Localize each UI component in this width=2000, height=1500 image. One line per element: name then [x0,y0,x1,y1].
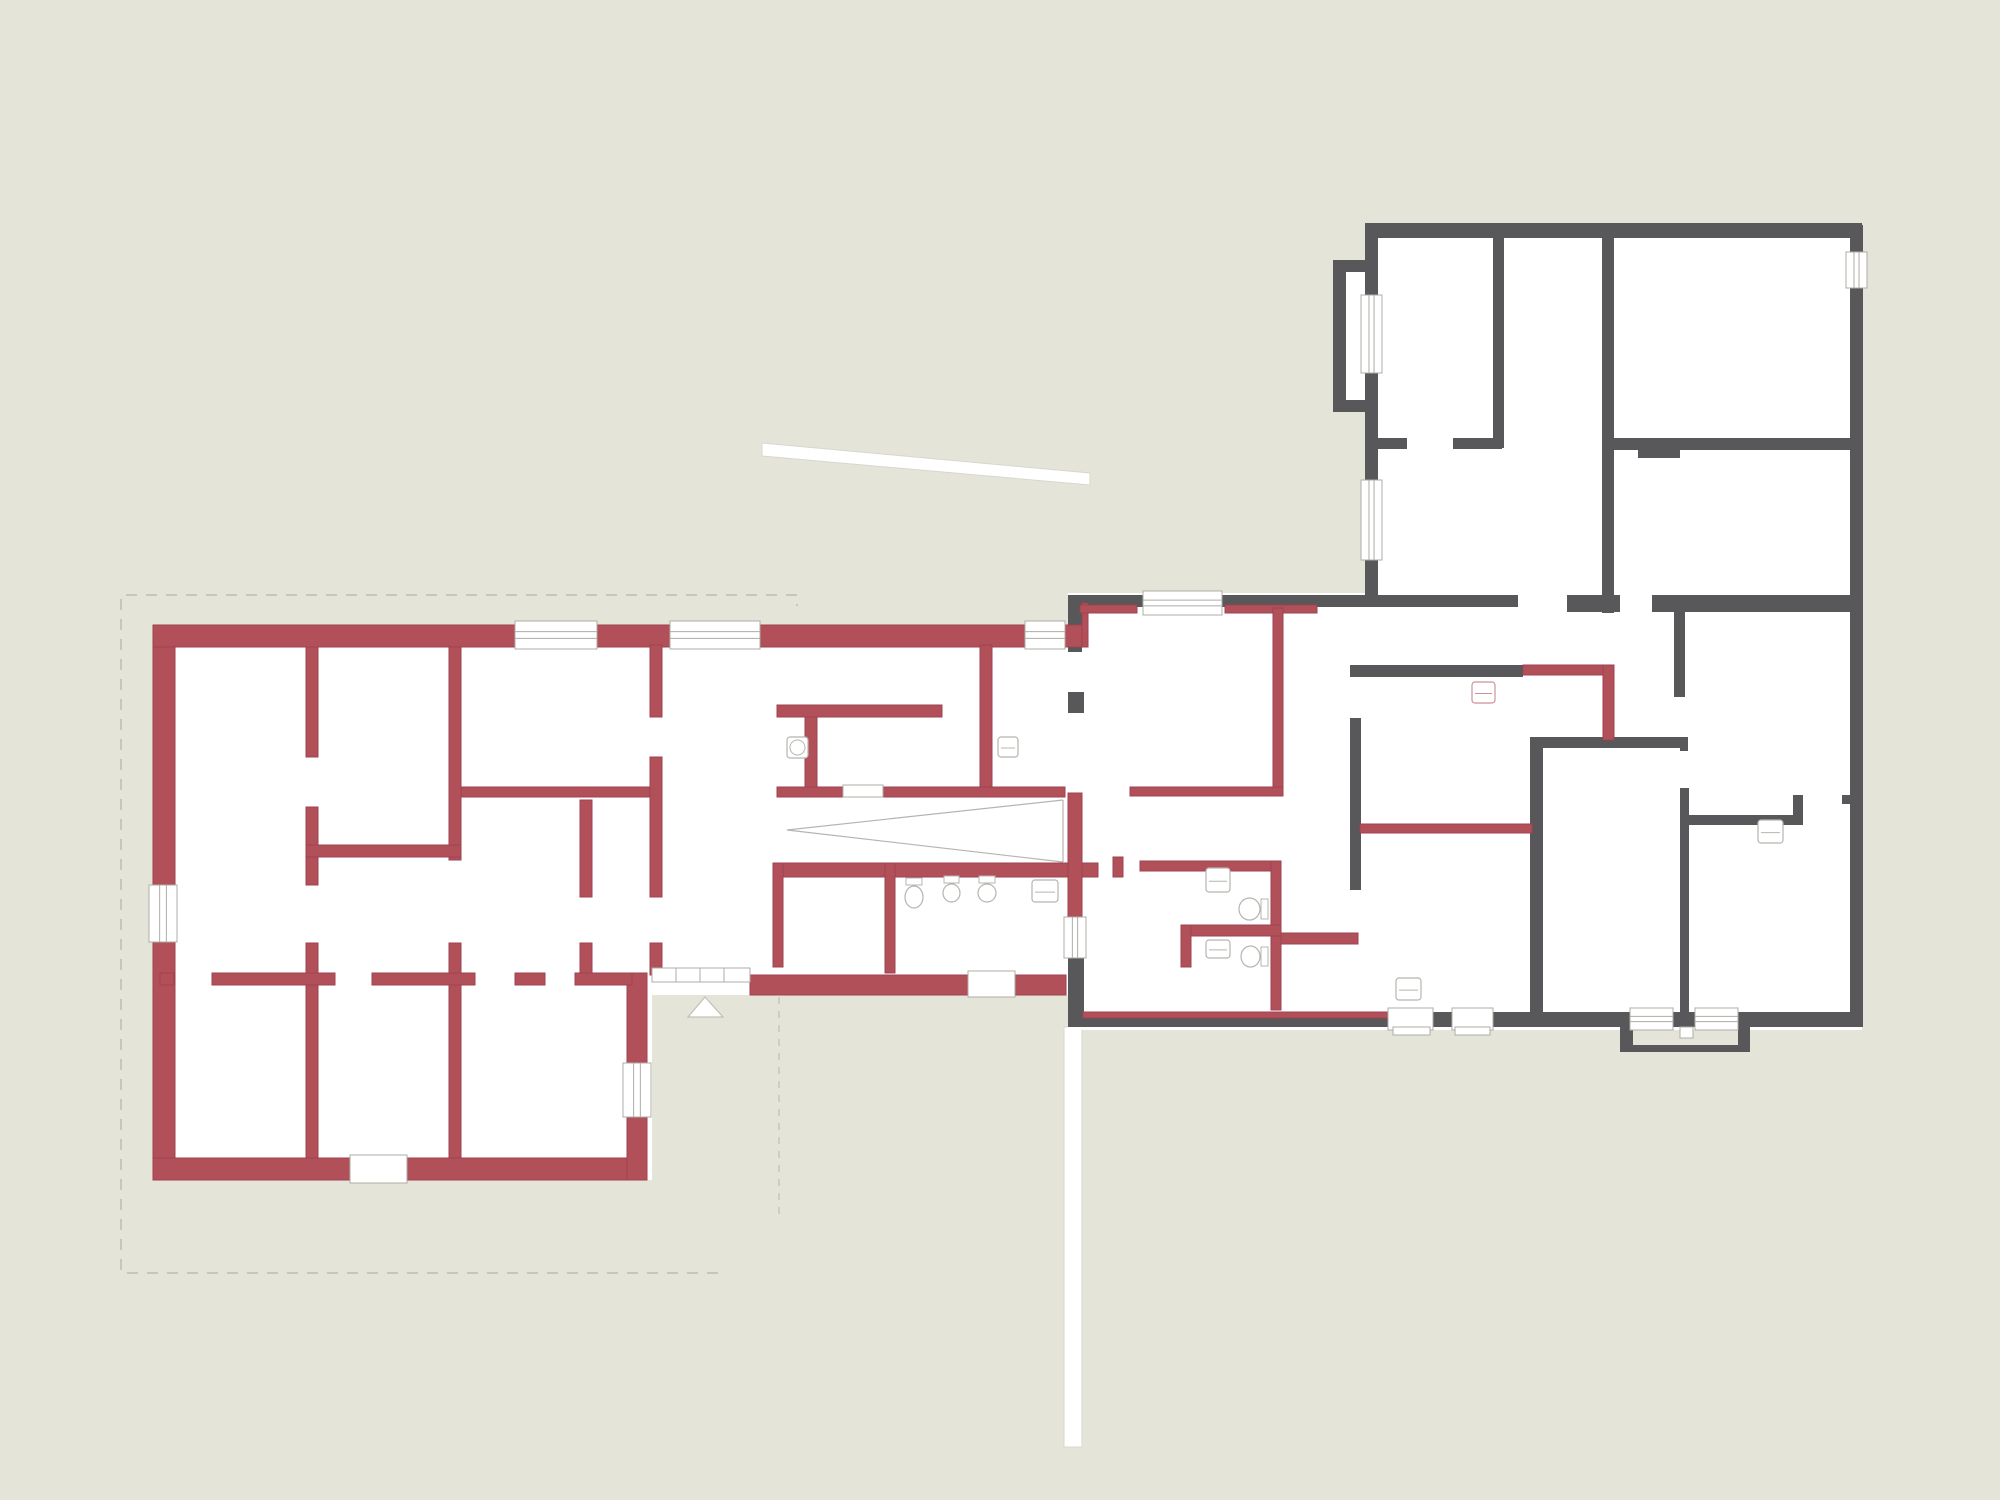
door-opening [968,971,1015,997]
gray-wall [1793,795,1803,825]
red-wall [1080,605,1137,613]
window [149,885,177,942]
red-wall [627,973,647,1063]
sink [1396,978,1421,1000]
gray-wall [1530,743,1543,1013]
red-wall [306,647,318,757]
red-wall [777,787,843,797]
red-wall [153,1158,350,1180]
window [1361,480,1382,560]
floor-slab [153,625,652,1180]
gray-wall [1620,1045,1750,1052]
window [623,1063,651,1117]
red-wall [1065,625,1082,647]
exterior-step [1393,1027,1430,1035]
gray-wall [1493,238,1504,448]
red-wall [372,973,475,985]
window [1630,1008,1673,1030]
red-wall [1015,975,1066,995]
red-wall [1523,665,1614,675]
walkway [762,443,1090,485]
gray-wall [1680,737,1688,751]
door-opening [350,1155,407,1183]
red-wall [160,973,174,985]
exterior-step [1680,1027,1693,1038]
red-wall [461,787,658,797]
gray-wall [1842,795,1852,804]
red-wall [650,757,662,897]
gray-wall [1738,1012,1862,1027]
gray-wall [1350,718,1361,890]
red-wall [515,973,545,985]
sink [1206,940,1230,958]
red-wall [780,863,1098,877]
red-wall [777,705,942,717]
red-wall [1068,793,1082,917]
red-wall [1273,608,1283,795]
red-wall [153,625,515,647]
window [1025,621,1065,649]
red-wall [1360,824,1532,833]
window [515,621,597,649]
red-wall [1181,925,1281,936]
gray-wall [1680,788,1689,1027]
red-wall [1113,857,1123,877]
sink [1472,682,1495,703]
floor-slab [652,625,1087,995]
red-wall [1225,605,1317,613]
gray-wall [1333,272,1346,400]
red-wall [885,863,895,973]
red-wall [1130,787,1283,796]
red-wall [760,625,1025,647]
threshold [652,968,750,982]
gray-wall [1365,373,1378,480]
gray-wall [1652,595,1863,612]
window [1695,1008,1738,1030]
gray-wall [1738,1027,1750,1052]
red-wall [153,647,175,885]
red-wall [883,787,1065,797]
red-wall [580,800,592,897]
red-wall [575,973,632,985]
window [1064,917,1086,958]
sink [1032,880,1058,902]
sink [998,737,1018,757]
red-wall [1603,665,1614,740]
red-wall [773,863,783,967]
red-wall [306,845,461,857]
sink [1758,820,1783,843]
gray-wall [1850,288,1863,1027]
gray-wall [1493,1012,1630,1027]
floor-plan-page [0,0,2000,1500]
red-wall [650,645,662,717]
garden-path [1064,1027,1082,1447]
red-wall [750,975,968,995]
window [1143,591,1222,615]
red-wall [212,973,335,985]
floor-plan-svg [0,0,2000,1500]
window [1361,295,1382,373]
gray-wall [1638,450,1680,458]
gray-wall [1602,438,1850,450]
gray-wall [1333,260,1378,272]
red-wall [627,1117,647,1180]
red-wall [1181,925,1191,967]
gray-wall [1602,238,1614,613]
gray-wall [1377,438,1407,449]
exterior-step [1455,1027,1490,1035]
gray-wall [1674,612,1685,697]
gray-wall [1068,692,1084,713]
red-wall [407,1158,647,1180]
entrance-arrow [688,997,723,1017]
gray-wall [1453,438,1502,449]
gray-wall [1333,400,1378,412]
red-wall [449,647,461,860]
gray-wall [1365,223,1862,238]
red-wall [980,645,992,787]
red-wall [1281,933,1358,944]
gray-wall [1365,560,1378,603]
gray-wall [1350,665,1523,677]
sink [1206,868,1230,892]
window [1846,252,1867,288]
gray-wall [1433,1012,1452,1027]
window [670,621,760,649]
red-wall [1083,1012,1388,1018]
threshold [843,785,883,797]
red-wall [597,625,670,647]
